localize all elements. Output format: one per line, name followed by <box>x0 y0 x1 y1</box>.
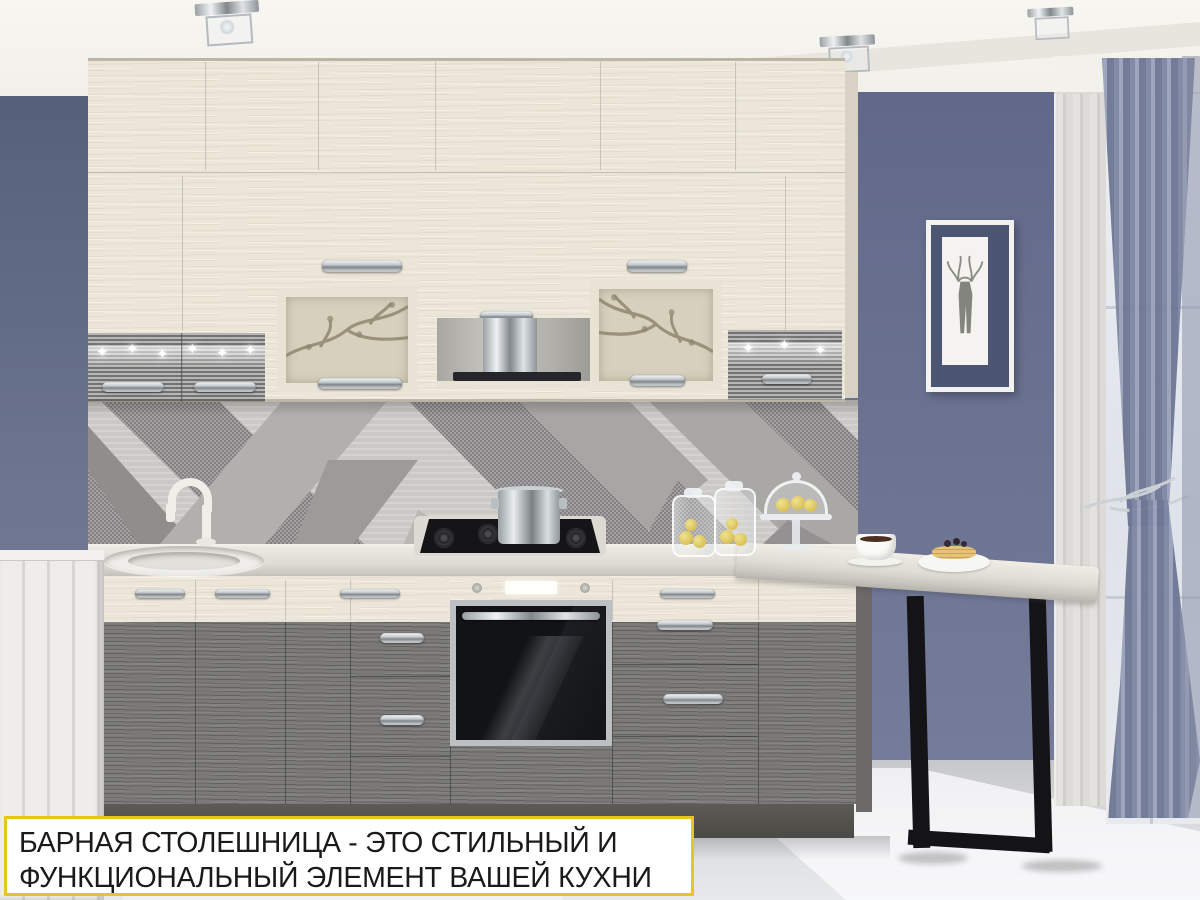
sink-inner <box>128 552 240 570</box>
lemon <box>693 535 706 548</box>
right-wall <box>845 92 1060 792</box>
lemon <box>679 531 693 545</box>
cake-stand <box>764 472 828 556</box>
drawer-handle <box>380 715 424 725</box>
drawer-seam <box>612 664 758 666</box>
lemon <box>776 498 790 512</box>
faucet-base <box>196 538 216 546</box>
door-seam <box>285 622 287 804</box>
lemon <box>791 496 805 510</box>
deer-art <box>942 237 988 365</box>
sparkle-glint: ✦ <box>778 338 791 353</box>
berries <box>944 540 951 547</box>
drawer-handle <box>135 589 185 598</box>
jar-lid <box>725 481 743 491</box>
door-seam <box>205 62 207 170</box>
cabinet-handle <box>102 382 164 392</box>
upper-cabinets: ✦ ✦ ✦ ✦ ✦ ✦ <box>88 58 858 404</box>
hood-shelf <box>437 381 597 388</box>
storage-jar <box>714 488 756 556</box>
sparkle-glint: ✦ <box>186 342 199 357</box>
door-seam <box>735 62 737 170</box>
base-cabinets <box>88 576 872 838</box>
range-hood-glass-visor <box>453 372 581 381</box>
range-hood-chimney <box>483 318 537 375</box>
sparkle-glint: ✦ <box>244 343 257 358</box>
oven-door <box>450 600 612 746</box>
jar-lid <box>684 488 702 498</box>
lemon <box>734 533 747 546</box>
door-seam <box>350 580 352 620</box>
banner-line-2: ФУНКЦИОНАЛЬНЫЙ ЭЛЕМЕНТ ВАШЕЙ КУХНИ <box>19 861 679 896</box>
drawer-handle <box>657 620 713 630</box>
range-hood-niche <box>437 318 597 388</box>
drawer-handle <box>340 589 400 598</box>
faucet-body <box>202 504 211 542</box>
pot-handle <box>559 498 567 509</box>
glass-display-door <box>590 280 722 390</box>
kitchen-photo-scene: ✦ ✦ ✦ ✦ ✦ ✦ <box>0 0 1200 900</box>
dome-knob <box>792 472 801 481</box>
upper-cabinet-top-edge <box>88 58 845 61</box>
built-in-oven <box>450 576 612 746</box>
sparkle-glint: ✦ <box>156 347 169 362</box>
sparkle-accent-cabinet: ✦ ✦ ✦ ✦ ✦ ✦ <box>88 333 265 402</box>
promo-banner: БАРНАЯ СТОЛЕШНИЦА - ЭТО СТИЛЬНЫЙ И ФУНКЦ… <box>4 816 694 896</box>
drawer-seam <box>350 676 450 678</box>
cooking-pot <box>498 490 560 544</box>
drawer-handle <box>215 589 270 598</box>
lemon <box>685 519 697 531</box>
drawer-handle <box>660 589 715 598</box>
coffee-surface <box>860 536 892 542</box>
drawer-handle <box>663 694 723 704</box>
door-seam <box>758 580 760 620</box>
door-seam <box>350 622 352 804</box>
oven-dial <box>472 583 482 593</box>
pot-handle <box>491 498 499 509</box>
door-seam <box>285 580 287 620</box>
base-side-panel <box>856 576 872 812</box>
ceiling-light <box>194 0 261 50</box>
door-seam <box>181 333 183 402</box>
wall-picture-frame <box>926 220 1014 392</box>
lemon <box>726 518 738 530</box>
stand-stem <box>792 520 800 544</box>
bar-leg-shadow <box>898 852 968 864</box>
door-seam <box>195 580 197 620</box>
sparkle-glint: ✦ <box>96 345 109 360</box>
storage-jar <box>672 495 716 557</box>
drawer-seam <box>612 736 758 738</box>
curtain-edge-sheer <box>1182 56 1200 818</box>
coffee-cup <box>856 534 896 560</box>
bar-leg-shadow <box>1022 860 1102 872</box>
upper-tier-seam <box>88 172 845 174</box>
faucet-spout <box>166 504 175 522</box>
cabinet-handle <box>194 382 256 392</box>
sparkle-glint: ✦ <box>216 346 229 361</box>
cabinet-handle <box>318 378 402 389</box>
hob-burner <box>566 528 586 548</box>
picture-inner-mat <box>942 237 988 365</box>
sparkle-band <box>88 346 265 366</box>
door-seam <box>785 176 787 331</box>
sparkle-accent-cabinet: ✦ ✦ ✦ <box>728 330 842 400</box>
upper-cabinet-bottom-shadow <box>88 399 845 402</box>
door-seam <box>612 622 614 804</box>
door-seam <box>612 580 614 620</box>
door-seam <box>195 622 197 804</box>
lemon <box>720 530 734 544</box>
pancake-stack <box>932 546 976 559</box>
oven-handle <box>462 612 600 620</box>
sparkle-glint: ✦ <box>814 343 827 358</box>
oven-dial <box>580 583 590 593</box>
cabinet-handle <box>630 375 685 386</box>
cabinet-handle <box>627 260 687 272</box>
cabinet-handle <box>322 260 402 272</box>
door-seam <box>435 62 437 170</box>
oven-glass-reflection <box>474 636 604 746</box>
banner-line-1: БАРНАЯ СТОЛЕШНИЦА - ЭТО СТИЛЬНЫЙ И <box>19 826 679 861</box>
drawer-handle <box>380 633 424 643</box>
glass-display-door <box>277 288 417 392</box>
ceiling-light <box>1027 7 1075 42</box>
sparkle-glint: ✦ <box>126 342 139 357</box>
light-frame <box>1035 16 1070 40</box>
wood-pillar <box>1054 80 1108 806</box>
stand-foot <box>781 544 811 550</box>
tree-branch-decor <box>599 289 713 381</box>
door-seam <box>318 62 320 170</box>
berries <box>953 538 960 545</box>
hob-burner <box>434 528 454 548</box>
tree-branch-decor <box>286 297 408 383</box>
berries <box>961 541 967 547</box>
upper-cabinet-side-panel <box>845 72 858 398</box>
lemon <box>804 499 817 512</box>
door-seam <box>600 62 602 170</box>
sparkle-glint: ✦ <box>742 341 755 356</box>
cabinet-handle <box>762 374 812 384</box>
door-seam <box>182 176 184 331</box>
hob-burner <box>478 524 498 544</box>
wainscot-cap <box>0 550 104 561</box>
oven-display <box>505 581 557 594</box>
door-seam <box>758 622 760 804</box>
drawer-seam <box>350 756 450 758</box>
